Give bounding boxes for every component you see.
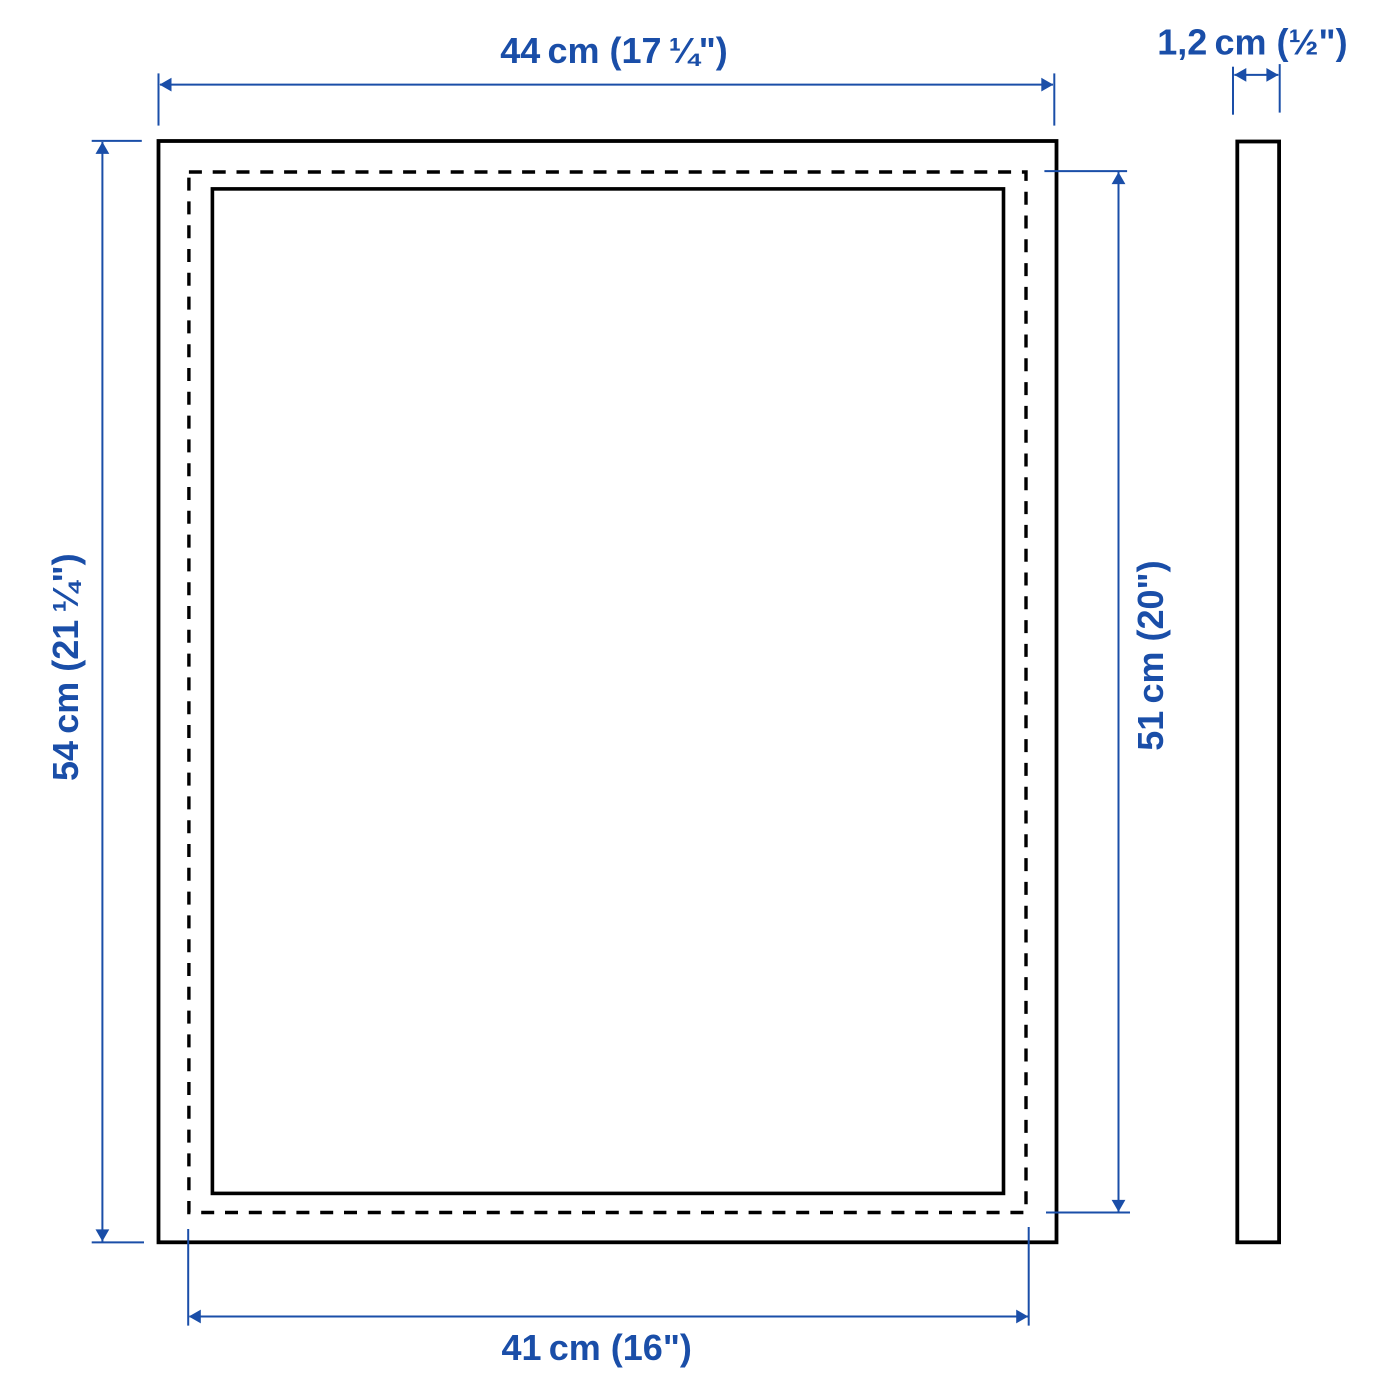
svg-text:44 cm (17 ¼"): 44 cm (17 ¼") xyxy=(500,30,728,71)
svg-text:54 cm (21 ¼"): 54 cm (21 ¼") xyxy=(45,553,86,781)
svg-text:1,2 cm (½"): 1,2 cm (½") xyxy=(1157,21,1347,62)
svg-text:51 cm (20"): 51 cm (20") xyxy=(1130,560,1171,750)
svg-text:41 cm (16"): 41 cm (16") xyxy=(502,1327,692,1368)
